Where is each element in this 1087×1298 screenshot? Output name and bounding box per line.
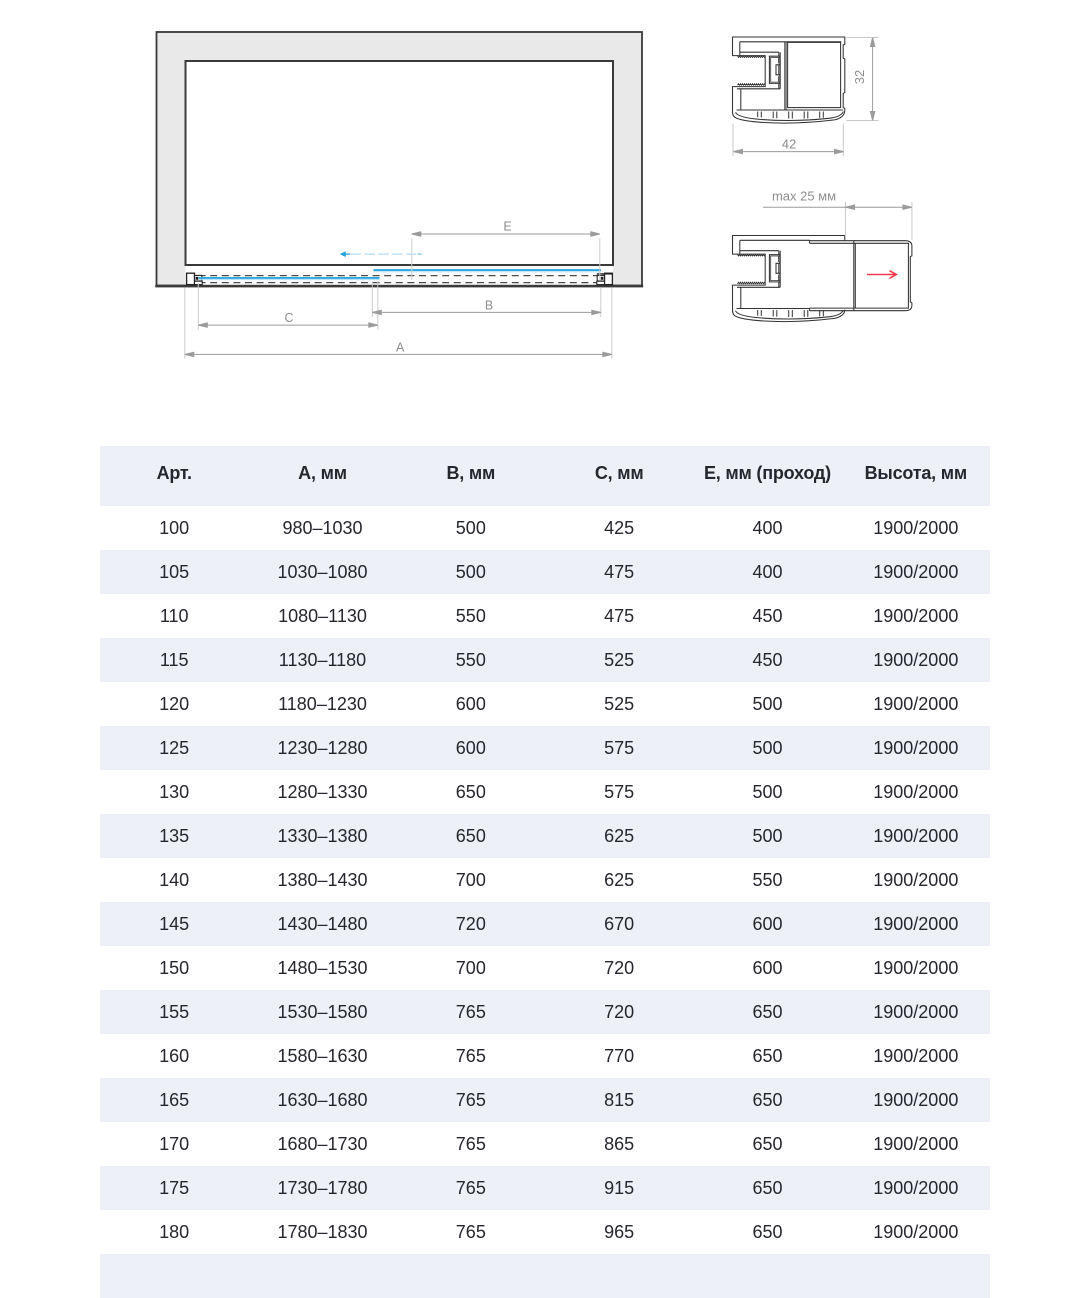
svg-text:C: C <box>284 311 293 325</box>
svg-text:32: 32 <box>852 70 867 84</box>
svg-text:B: B <box>485 299 493 313</box>
svg-text:A: A <box>396 341 405 355</box>
svg-text:max 25 мм: max 25 мм <box>772 189 836 204</box>
svg-text:E: E <box>503 220 511 234</box>
svg-text:42: 42 <box>782 137 796 152</box>
